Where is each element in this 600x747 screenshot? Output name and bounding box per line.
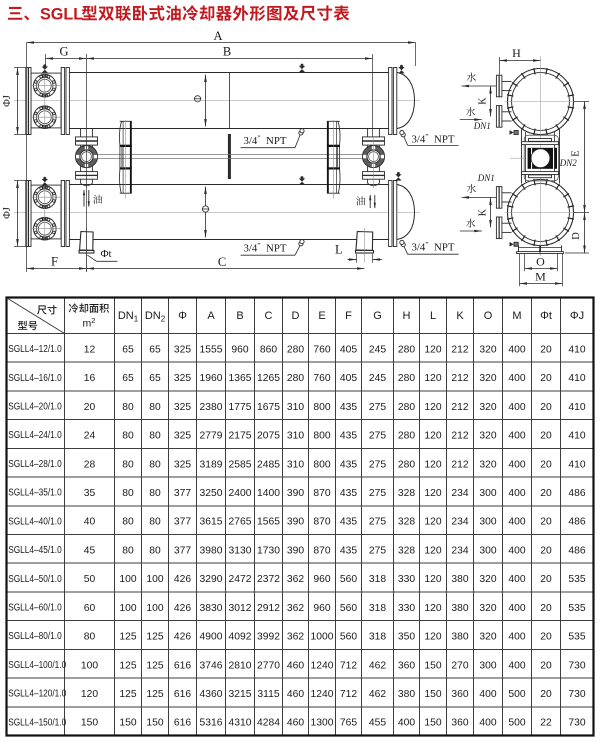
svg-text:3/4” NPT: 3/4” NPT <box>412 240 455 254</box>
svg-text:730: 730 <box>568 718 585 729</box>
svg-text:C: C <box>218 255 226 269</box>
svg-text:125: 125 <box>119 689 136 700</box>
svg-text:765: 765 <box>340 718 357 729</box>
svg-text:460: 460 <box>287 718 304 729</box>
svg-text:65: 65 <box>149 373 161 384</box>
svg-text:275: 275 <box>369 431 386 442</box>
svg-text:16: 16 <box>84 373 96 384</box>
svg-text:3/4” NPT: 3/4” NPT <box>412 132 455 146</box>
svg-text:320: 320 <box>479 373 496 384</box>
svg-text:410: 410 <box>568 431 585 442</box>
svg-text:730: 730 <box>568 660 585 671</box>
svg-text:K: K <box>456 310 464 322</box>
svg-text:ΦJ: ΦJ <box>2 95 13 107</box>
svg-text:234: 234 <box>451 488 468 499</box>
svg-text:380: 380 <box>451 603 468 614</box>
svg-text:2400: 2400 <box>229 488 252 499</box>
svg-text:80: 80 <box>122 402 134 413</box>
svg-text:120: 120 <box>424 344 441 355</box>
svg-text:80: 80 <box>122 545 134 556</box>
svg-text:362: 362 <box>287 603 304 614</box>
svg-text:960: 960 <box>231 344 248 355</box>
svg-text:E: E <box>318 310 325 322</box>
svg-text:1960: 1960 <box>200 373 223 384</box>
svg-text:400: 400 <box>508 488 525 499</box>
svg-text:280: 280 <box>398 344 415 355</box>
svg-text:310: 310 <box>287 459 304 470</box>
svg-text:377: 377 <box>174 545 191 556</box>
svg-text:300: 300 <box>479 545 496 556</box>
svg-text:330: 330 <box>398 603 415 614</box>
svg-text:80: 80 <box>149 459 161 470</box>
svg-text:120: 120 <box>424 632 441 643</box>
svg-text:125: 125 <box>119 660 136 671</box>
svg-text:20: 20 <box>540 574 552 585</box>
svg-text:300: 300 <box>479 488 496 499</box>
svg-text:3992: 3992 <box>257 632 280 643</box>
svg-text:SGLL4–28/1.0: SGLL4–28/1.0 <box>8 459 62 470</box>
svg-text:125: 125 <box>119 632 136 643</box>
svg-text:275: 275 <box>369 402 386 413</box>
svg-text:960: 960 <box>313 574 330 585</box>
svg-text:80: 80 <box>122 459 134 470</box>
svg-text:870: 870 <box>313 545 330 556</box>
svg-text:380: 380 <box>451 574 468 585</box>
svg-text:320: 320 <box>479 574 496 585</box>
svg-text:377: 377 <box>174 488 191 499</box>
svg-text:20: 20 <box>540 459 552 470</box>
svg-text:SGLL4–100/1.0: SGLL4–100/1.0 <box>8 660 66 671</box>
svg-text:870: 870 <box>313 517 330 528</box>
svg-text:100: 100 <box>81 660 98 671</box>
svg-text:3/4” NPT: 3/4” NPT <box>244 134 287 148</box>
svg-text:1675: 1675 <box>257 402 280 413</box>
svg-text:390: 390 <box>287 545 304 556</box>
svg-text:325: 325 <box>174 373 191 384</box>
svg-text:K: K <box>478 208 489 216</box>
svg-text:20: 20 <box>540 517 552 528</box>
svg-text:400: 400 <box>508 632 525 643</box>
svg-text:800: 800 <box>313 431 330 442</box>
svg-text:65: 65 <box>149 344 161 355</box>
svg-text:3115: 3115 <box>257 689 279 700</box>
svg-text:22: 22 <box>540 718 552 729</box>
svg-text:360: 360 <box>451 718 468 729</box>
svg-text:DN1: DN1 <box>473 121 491 131</box>
svg-text:A: A <box>213 29 222 43</box>
svg-text:120: 120 <box>424 402 441 413</box>
svg-text:360: 360 <box>398 660 415 671</box>
svg-text:20: 20 <box>540 603 552 614</box>
svg-text:80: 80 <box>122 431 134 442</box>
svg-text:405: 405 <box>340 344 357 355</box>
svg-text:330: 330 <box>398 574 415 585</box>
svg-text:300: 300 <box>479 517 496 528</box>
svg-text:560: 560 <box>340 603 357 614</box>
svg-text:50: 50 <box>84 574 96 585</box>
svg-text:Φt: Φt <box>101 248 112 260</box>
svg-text:2485: 2485 <box>257 459 280 470</box>
svg-text:D: D <box>571 232 582 240</box>
svg-text:320: 320 <box>479 603 496 614</box>
svg-text:3215: 3215 <box>229 689 252 700</box>
svg-text:B: B <box>236 310 243 322</box>
svg-text:20: 20 <box>540 632 552 643</box>
svg-text:960: 960 <box>313 603 330 614</box>
svg-text:328: 328 <box>398 517 415 528</box>
svg-text:362: 362 <box>287 574 304 585</box>
svg-text:380: 380 <box>451 632 468 643</box>
svg-text:3980: 3980 <box>200 545 223 556</box>
svg-text:400: 400 <box>508 373 525 384</box>
svg-text:SGLL4–20/1.0: SGLL4–20/1.0 <box>8 401 62 412</box>
svg-text:80: 80 <box>122 517 134 528</box>
svg-text:20: 20 <box>540 488 552 499</box>
svg-text:462: 462 <box>369 660 386 671</box>
svg-text:60: 60 <box>84 603 96 614</box>
svg-text:SGLL4–60/1.0: SGLL4–60/1.0 <box>8 602 62 613</box>
svg-text:800: 800 <box>313 402 330 413</box>
svg-text:360: 360 <box>451 689 468 700</box>
svg-text:712: 712 <box>340 660 357 671</box>
svg-text:80: 80 <box>149 545 161 556</box>
svg-text:616: 616 <box>174 718 191 729</box>
svg-text:150: 150 <box>424 660 441 671</box>
svg-text:3/4” NPT: 3/4” NPT <box>244 241 287 255</box>
svg-text:460: 460 <box>287 689 304 700</box>
svg-text:120: 120 <box>424 431 441 442</box>
svg-text:400: 400 <box>508 603 525 614</box>
svg-text:275: 275 <box>369 488 386 499</box>
svg-text:125: 125 <box>146 632 163 643</box>
svg-text:C: C <box>265 310 273 322</box>
svg-text:280: 280 <box>398 373 415 384</box>
svg-text:SGLL4–12/1.0: SGLL4–12/1.0 <box>8 344 62 355</box>
svg-text:120: 120 <box>424 459 441 470</box>
svg-text:80: 80 <box>149 488 161 499</box>
svg-text:245: 245 <box>369 373 386 384</box>
svg-text:400: 400 <box>508 545 525 556</box>
svg-text:410: 410 <box>568 344 585 355</box>
svg-text:280: 280 <box>287 344 304 355</box>
svg-text:24: 24 <box>84 431 96 442</box>
svg-text:435: 435 <box>340 431 357 442</box>
svg-text:390: 390 <box>287 517 304 528</box>
svg-text:SGLL: SGLL <box>40 5 83 23</box>
svg-text:SGLL4–150/1.0: SGLL4–150/1.0 <box>8 717 66 728</box>
svg-text:730: 730 <box>568 689 585 700</box>
svg-text:275: 275 <box>369 459 386 470</box>
svg-text:4360: 4360 <box>200 689 223 700</box>
svg-text:280: 280 <box>287 373 304 384</box>
svg-text:4284: 4284 <box>257 718 280 729</box>
svg-text:400: 400 <box>508 402 525 413</box>
svg-text:325: 325 <box>174 344 191 355</box>
svg-text:20: 20 <box>540 545 552 556</box>
svg-text:1240: 1240 <box>311 660 334 671</box>
svg-text:D: D <box>292 310 300 322</box>
svg-text:G: G <box>373 310 382 322</box>
svg-text:2175: 2175 <box>229 431 252 442</box>
svg-text:860: 860 <box>260 344 277 355</box>
svg-text:328: 328 <box>398 488 415 499</box>
svg-text:712: 712 <box>340 689 357 700</box>
svg-text:2380: 2380 <box>200 402 223 413</box>
svg-text:3130: 3130 <box>229 545 252 556</box>
svg-text:65: 65 <box>122 373 134 384</box>
svg-text:435: 435 <box>340 402 357 413</box>
svg-text:SGLL4–120/1.0: SGLL4–120/1.0 <box>8 689 66 700</box>
svg-text:320: 320 <box>479 344 496 355</box>
svg-text:L: L <box>335 242 343 256</box>
svg-text:2472: 2472 <box>229 574 252 585</box>
svg-text:435: 435 <box>340 517 357 528</box>
svg-text:280: 280 <box>398 431 415 442</box>
svg-text:560: 560 <box>340 632 357 643</box>
svg-text:2372: 2372 <box>257 574 280 585</box>
svg-text:535: 535 <box>568 574 585 585</box>
svg-text:616: 616 <box>174 660 191 671</box>
svg-text:125: 125 <box>146 660 163 671</box>
svg-text:4900: 4900 <box>200 632 223 643</box>
svg-text:212: 212 <box>451 344 468 355</box>
svg-text:M: M <box>512 310 521 322</box>
svg-text:3830: 3830 <box>200 603 223 614</box>
svg-text:234: 234 <box>451 545 468 556</box>
svg-text:1555: 1555 <box>200 344 223 355</box>
svg-text:325: 325 <box>174 431 191 442</box>
svg-text:377: 377 <box>174 517 191 528</box>
svg-text:Φ: Φ <box>178 310 187 322</box>
svg-text:DN1: DN1 <box>477 173 495 183</box>
svg-text:212: 212 <box>451 459 468 470</box>
svg-text:212: 212 <box>451 431 468 442</box>
svg-text:390: 390 <box>287 488 304 499</box>
svg-text:20: 20 <box>540 660 552 671</box>
svg-text:35: 35 <box>84 488 96 499</box>
svg-text:435: 435 <box>340 459 357 470</box>
svg-text:462: 462 <box>369 689 386 700</box>
svg-text:B: B <box>223 45 231 59</box>
svg-text:1775: 1775 <box>229 402 252 413</box>
svg-text:100: 100 <box>119 574 136 585</box>
svg-text:318: 318 <box>369 632 386 643</box>
svg-text:20: 20 <box>540 431 552 442</box>
svg-text:F: F <box>51 254 58 268</box>
svg-text:E: E <box>571 150 582 156</box>
svg-text:616: 616 <box>174 689 191 700</box>
svg-text:45: 45 <box>84 545 96 556</box>
svg-text:2810: 2810 <box>229 660 252 671</box>
svg-text:4092: 4092 <box>229 632 252 643</box>
svg-text:4310: 4310 <box>229 718 252 729</box>
svg-text:760: 760 <box>313 344 330 355</box>
svg-text:2765: 2765 <box>229 517 252 528</box>
svg-text:280: 280 <box>398 402 415 413</box>
svg-text:410: 410 <box>568 459 585 470</box>
svg-text:O: O <box>536 255 545 269</box>
svg-text:270: 270 <box>451 660 468 671</box>
svg-text:400: 400 <box>508 574 525 585</box>
svg-text:125: 125 <box>146 689 163 700</box>
svg-text:120: 120 <box>424 488 441 499</box>
svg-text:870: 870 <box>313 488 330 499</box>
svg-text:318: 318 <box>369 603 386 614</box>
svg-text:410: 410 <box>568 373 585 384</box>
svg-text:5316: 5316 <box>200 718 223 729</box>
svg-text:426: 426 <box>174 574 191 585</box>
svg-text:1240: 1240 <box>311 689 334 700</box>
svg-text:120: 120 <box>424 517 441 528</box>
svg-text:318: 318 <box>369 574 386 585</box>
svg-text:400: 400 <box>479 689 496 700</box>
svg-text:120: 120 <box>424 373 441 384</box>
svg-text:100: 100 <box>119 603 136 614</box>
svg-text:320: 320 <box>479 402 496 413</box>
svg-text:150: 150 <box>119 718 136 729</box>
svg-text:310: 310 <box>287 402 304 413</box>
svg-text:500: 500 <box>508 718 525 729</box>
svg-text:400: 400 <box>508 344 525 355</box>
svg-text:325: 325 <box>174 459 191 470</box>
svg-text:1730: 1730 <box>257 545 280 556</box>
svg-text:Φt: Φt <box>540 310 552 322</box>
svg-text:SGLL4–50/1.0: SGLL4–50/1.0 <box>8 574 62 585</box>
svg-text:400: 400 <box>508 517 525 528</box>
svg-text:ΦJ: ΦJ <box>570 310 584 322</box>
svg-text:3012: 3012 <box>229 603 252 614</box>
svg-text:80: 80 <box>84 632 96 643</box>
svg-text:3189: 3189 <box>200 459 223 470</box>
svg-text:410: 410 <box>568 402 585 413</box>
svg-text:234: 234 <box>451 517 468 528</box>
svg-text:535: 535 <box>568 632 585 643</box>
svg-text:80: 80 <box>149 431 161 442</box>
svg-text:3290: 3290 <box>200 574 223 585</box>
svg-text:20: 20 <box>540 373 552 384</box>
svg-text:350: 350 <box>398 632 415 643</box>
svg-text:L: L <box>430 310 436 322</box>
svg-text:362: 362 <box>287 632 304 643</box>
svg-text:SGLL4–35/1.0: SGLL4–35/1.0 <box>8 488 62 499</box>
svg-text:500: 500 <box>508 689 525 700</box>
svg-text:486: 486 <box>568 488 585 499</box>
svg-text:426: 426 <box>174 603 191 614</box>
svg-text:80: 80 <box>122 488 134 499</box>
svg-text:G: G <box>59 45 68 59</box>
svg-text:2770: 2770 <box>257 660 280 671</box>
svg-text:20: 20 <box>540 344 552 355</box>
svg-text:760: 760 <box>313 373 330 384</box>
svg-text:ΦJ: ΦJ <box>2 207 13 219</box>
svg-text:SGLL4–45/1.0: SGLL4–45/1.0 <box>8 545 62 556</box>
svg-text:3615: 3615 <box>200 517 223 528</box>
svg-text:20: 20 <box>540 402 552 413</box>
svg-text:F: F <box>345 310 352 322</box>
svg-text:SGLL4–24/1.0: SGLL4–24/1.0 <box>8 430 62 441</box>
svg-text:2075: 2075 <box>257 431 280 442</box>
svg-text:H: H <box>512 46 521 60</box>
svg-text:328: 328 <box>398 545 415 556</box>
svg-text:535: 535 <box>568 603 585 614</box>
svg-text:40: 40 <box>84 517 96 528</box>
svg-text:H: H <box>403 310 411 322</box>
svg-text:80: 80 <box>149 402 161 413</box>
svg-text:100: 100 <box>146 574 163 585</box>
svg-text:405: 405 <box>340 373 357 384</box>
svg-text:275: 275 <box>369 517 386 528</box>
svg-text:100: 100 <box>146 603 163 614</box>
svg-text:320: 320 <box>479 431 496 442</box>
svg-text:486: 486 <box>568 517 585 528</box>
svg-text:2912: 2912 <box>257 603 280 614</box>
svg-text:275: 275 <box>369 545 386 556</box>
svg-text:486: 486 <box>568 545 585 556</box>
svg-text:560: 560 <box>340 574 357 585</box>
svg-text:1365: 1365 <box>229 373 252 384</box>
svg-text:245: 245 <box>369 344 386 355</box>
svg-text:28: 28 <box>84 459 96 470</box>
svg-text:435: 435 <box>340 545 357 556</box>
svg-text:150: 150 <box>424 718 441 729</box>
svg-text:400: 400 <box>398 718 415 729</box>
svg-text:320: 320 <box>479 459 496 470</box>
svg-text:2779: 2779 <box>200 431 223 442</box>
svg-text:12: 12 <box>84 344 96 355</box>
svg-text:400: 400 <box>479 718 496 729</box>
svg-text:400: 400 <box>508 431 525 442</box>
svg-text:K: K <box>478 97 489 105</box>
svg-text:300: 300 <box>479 660 496 671</box>
svg-text:150: 150 <box>81 718 98 729</box>
svg-text:120: 120 <box>424 574 441 585</box>
svg-text:SGLL4–40/1.0: SGLL4–40/1.0 <box>8 516 62 527</box>
svg-text:1300: 1300 <box>311 718 334 729</box>
svg-text:455: 455 <box>369 718 386 729</box>
svg-text:O: O <box>484 310 493 322</box>
svg-text:M: M <box>535 269 546 283</box>
svg-text:212: 212 <box>451 402 468 413</box>
svg-text:SGLL4–16/1.0: SGLL4–16/1.0 <box>8 373 62 384</box>
svg-text:435: 435 <box>340 488 357 499</box>
svg-text:3746: 3746 <box>200 660 223 671</box>
svg-text:1000: 1000 <box>311 632 334 643</box>
svg-text:310: 310 <box>287 431 304 442</box>
svg-text:80: 80 <box>149 517 161 528</box>
svg-text:3250: 3250 <box>200 488 223 499</box>
svg-text:65: 65 <box>122 344 134 355</box>
svg-text:120: 120 <box>424 603 441 614</box>
svg-text:2585: 2585 <box>229 459 252 470</box>
svg-text:460: 460 <box>287 660 304 671</box>
svg-text:212: 212 <box>451 373 468 384</box>
svg-text:150: 150 <box>146 718 163 729</box>
svg-text:1565: 1565 <box>257 517 280 528</box>
svg-text:426: 426 <box>174 632 191 643</box>
svg-text:1400: 1400 <box>257 488 280 499</box>
svg-text:280: 280 <box>398 459 415 470</box>
svg-text:320: 320 <box>479 632 496 643</box>
svg-text:800: 800 <box>313 459 330 470</box>
svg-text:325: 325 <box>174 402 191 413</box>
svg-text:380: 380 <box>398 689 415 700</box>
svg-text:400: 400 <box>508 459 525 470</box>
svg-text:20: 20 <box>84 402 96 413</box>
svg-text:120: 120 <box>81 689 98 700</box>
svg-text:1265: 1265 <box>257 373 280 384</box>
svg-text:150: 150 <box>424 689 441 700</box>
svg-text:A: A <box>207 310 215 322</box>
